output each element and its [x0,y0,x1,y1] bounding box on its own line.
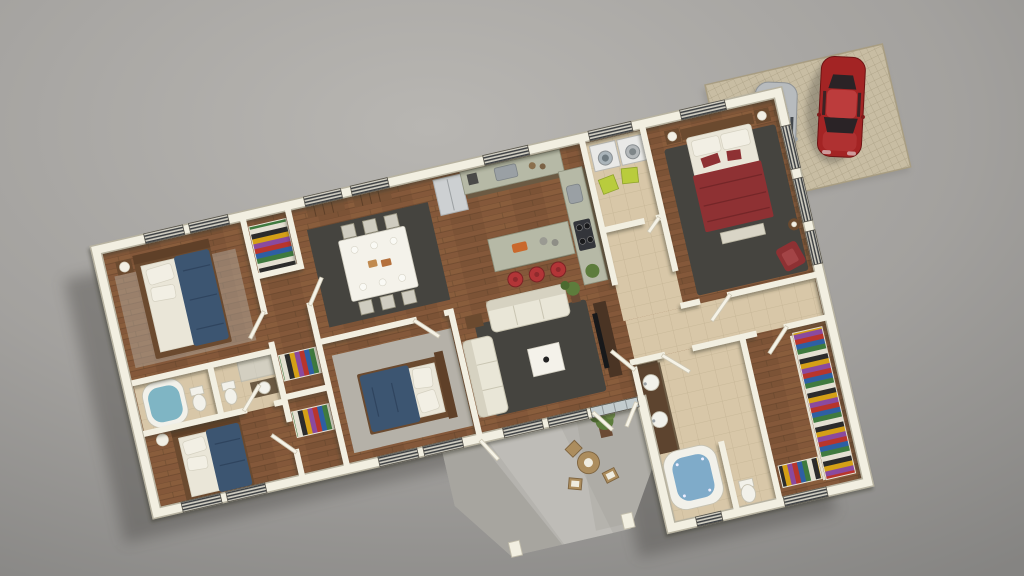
floorplan-scene [0,0,1024,576]
laundry-basket [621,167,638,184]
washer [589,141,620,172]
render-stage [0,0,1024,576]
